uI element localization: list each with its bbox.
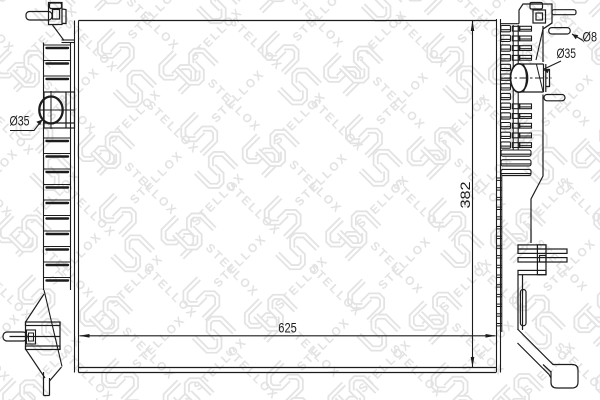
svg-text:625: 625 (278, 320, 297, 336)
svg-text:Ø35: Ø35 (557, 45, 577, 61)
svg-text:382: 382 (457, 181, 473, 208)
svg-text:Ø8: Ø8 (583, 29, 598, 45)
svg-text:Ø35: Ø35 (10, 113, 30, 129)
